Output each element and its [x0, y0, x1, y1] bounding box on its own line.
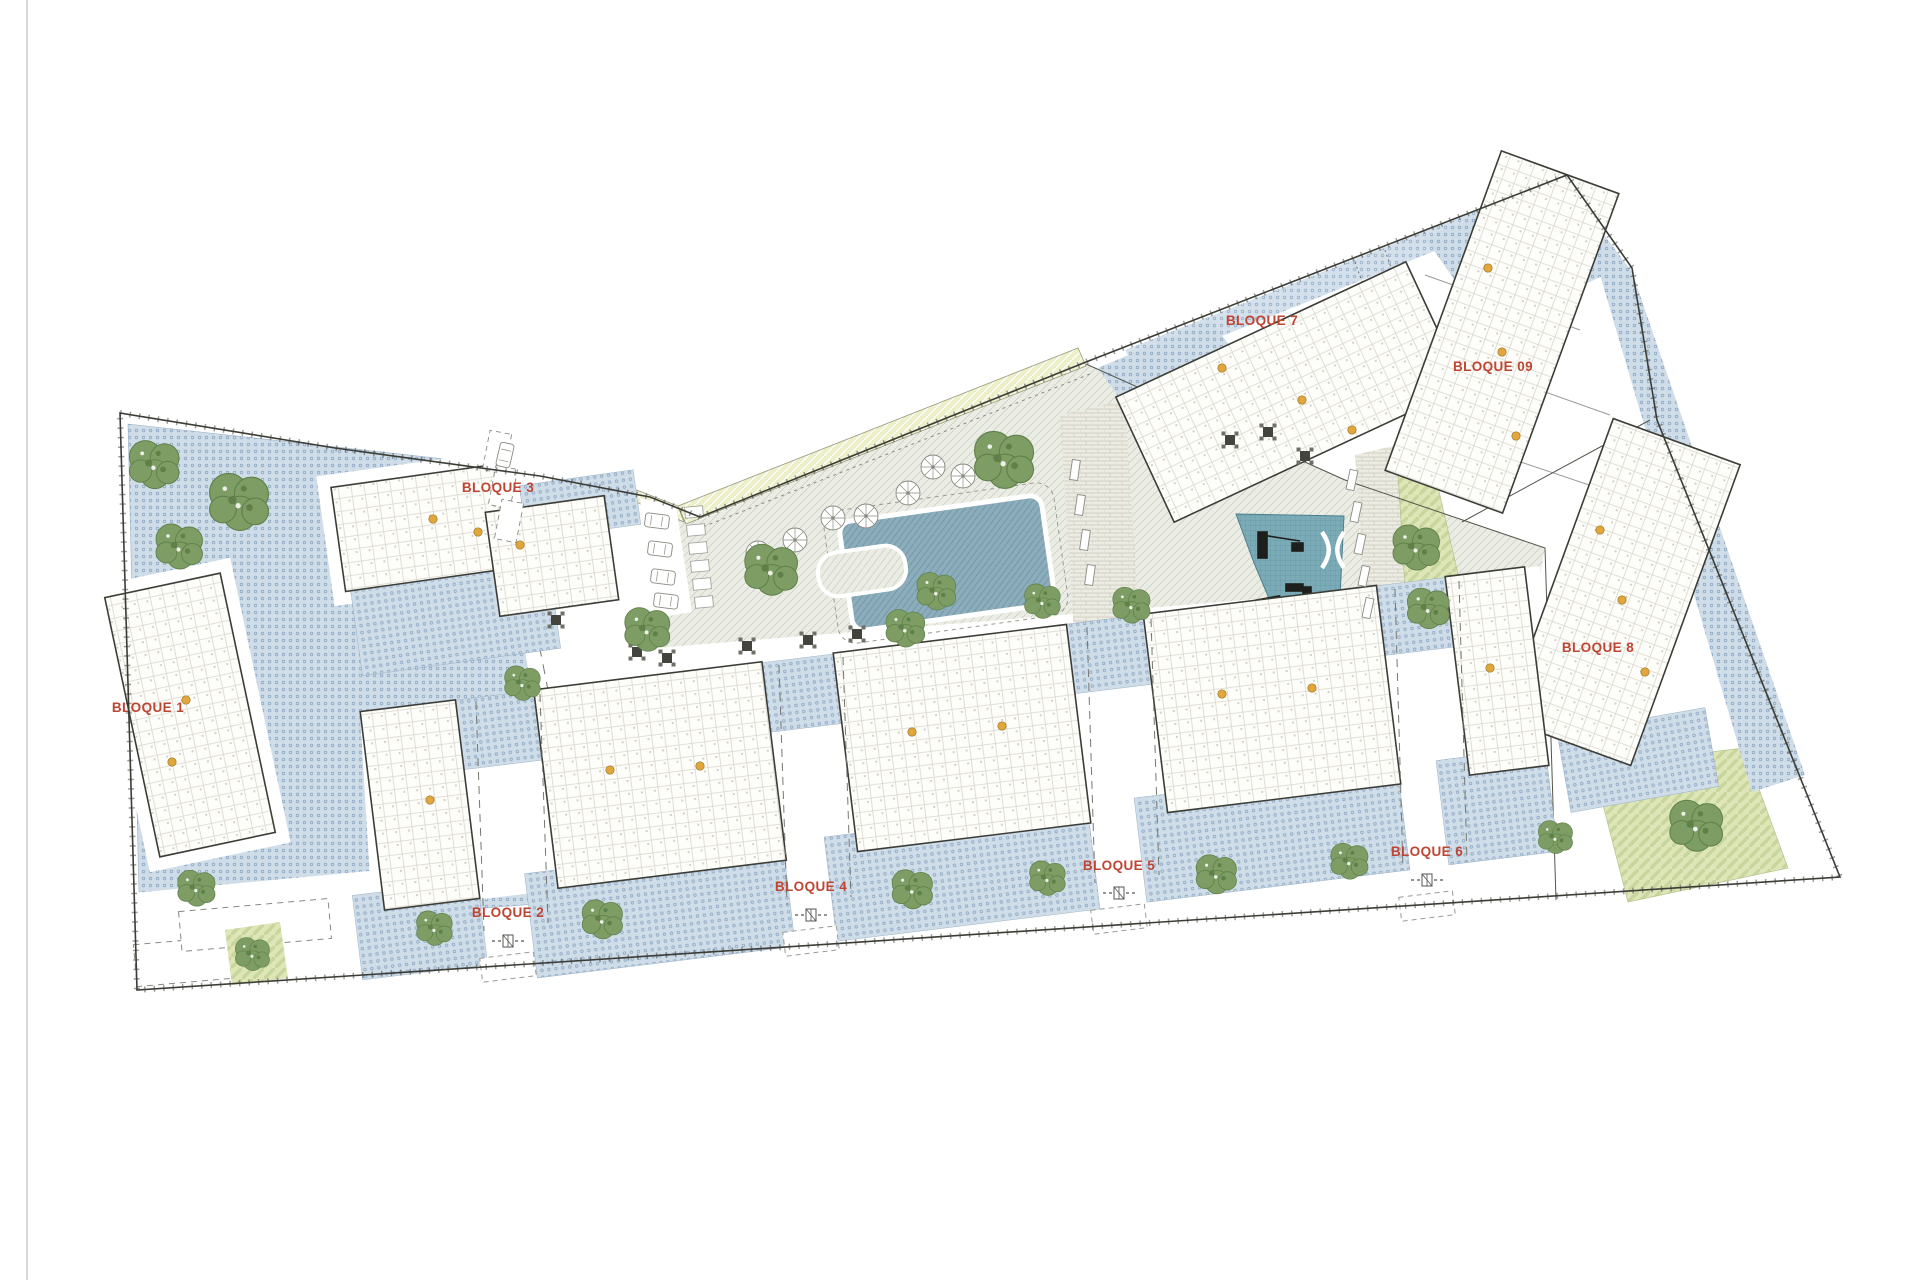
entry-marker [1218, 690, 1226, 698]
entry-marker [429, 515, 437, 523]
entry-marker [168, 758, 176, 766]
tree-icon [625, 608, 670, 652]
building-band-2 [534, 662, 787, 889]
parasol-icon [854, 504, 878, 528]
tree-icon [1331, 843, 1368, 879]
tree-icon [975, 431, 1034, 488]
stepping-stone [693, 578, 712, 591]
stepping-stone [687, 524, 706, 537]
stepping-stone [695, 596, 714, 609]
entry-marker [516, 541, 524, 549]
tree-icon [886, 610, 925, 648]
tree-icon [1407, 588, 1449, 629]
car-icon [644, 513, 670, 530]
parasol-icon [821, 506, 845, 530]
stepping-stone [691, 560, 710, 573]
entry-marker [1348, 426, 1356, 434]
entry-marker [606, 766, 614, 774]
entry-marker [696, 762, 704, 770]
entry-marker [1641, 668, 1649, 676]
car-icon [647, 541, 673, 558]
tree-icon [505, 666, 541, 701]
entry-marker [1618, 596, 1626, 604]
entry-marker [1218, 364, 1226, 372]
tree-icon [1196, 855, 1236, 894]
block-label-bloque-1: BLOQUE 1 [112, 700, 184, 715]
tree-icon [178, 870, 215, 906]
tree-icon [129, 441, 179, 489]
tree-icon [892, 870, 932, 909]
entry-marker [474, 528, 482, 536]
entry-marker [1486, 664, 1494, 672]
entry-marker [1596, 526, 1604, 534]
tree-icon [582, 900, 622, 939]
parasol-icon [921, 455, 945, 479]
entry-marker [1498, 348, 1506, 356]
car-icon [653, 593, 679, 610]
block-label-bloque-4: BLOQUE 4 [775, 879, 847, 894]
tree-icon [1393, 525, 1440, 570]
entry-marker [1308, 684, 1316, 692]
tree-icon [1030, 861, 1066, 896]
tree-icon [156, 524, 203, 569]
block-label-bloque-3: BLOQUE 3 [462, 480, 534, 495]
tree-icon [1538, 821, 1572, 854]
parasol-icon [951, 464, 975, 488]
stepping-stone [689, 542, 708, 555]
site-plan-drawing: BLOQUE 1BLOQUE 2BLOQUE 3BLOQUE 4BLOQUE 5… [0, 0, 1920, 1280]
block-label-bloque-5: BLOQUE 5 [1083, 858, 1155, 873]
entry-marker [908, 728, 916, 736]
entry-marker [1512, 432, 1520, 440]
parasol-icon [896, 481, 920, 505]
entry-marker [1298, 396, 1306, 404]
tree-icon [1025, 584, 1061, 619]
block-label-bloque-6: BLOQUE 6 [1391, 844, 1463, 859]
car-icon [650, 569, 676, 586]
block-label-bloque-8: BLOQUE 8 [1562, 640, 1634, 655]
building-band-4 [1143, 585, 1401, 812]
block-label-bloque-2: BLOQUE 2 [472, 905, 544, 920]
tree-icon [235, 938, 269, 971]
entry-marker [998, 722, 1006, 730]
entry-marker [1484, 264, 1492, 272]
block-label-bloque-7: BLOQUE 7 [1226, 313, 1298, 328]
tree-icon [1670, 800, 1723, 851]
tree-icon [745, 544, 798, 595]
tree-icon [210, 473, 269, 530]
block-label-bloque-09: BLOQUE 09 [1453, 359, 1533, 374]
tree-icon [917, 573, 956, 611]
building-band-3 [833, 624, 1091, 851]
tree-icon [1113, 587, 1150, 623]
site-plan-page: BLOQUE 1BLOQUE 2BLOQUE 3BLOQUE 4BLOQUE 5… [0, 0, 1920, 1280]
tree-icon [417, 911, 453, 946]
entry-marker [426, 796, 434, 804]
